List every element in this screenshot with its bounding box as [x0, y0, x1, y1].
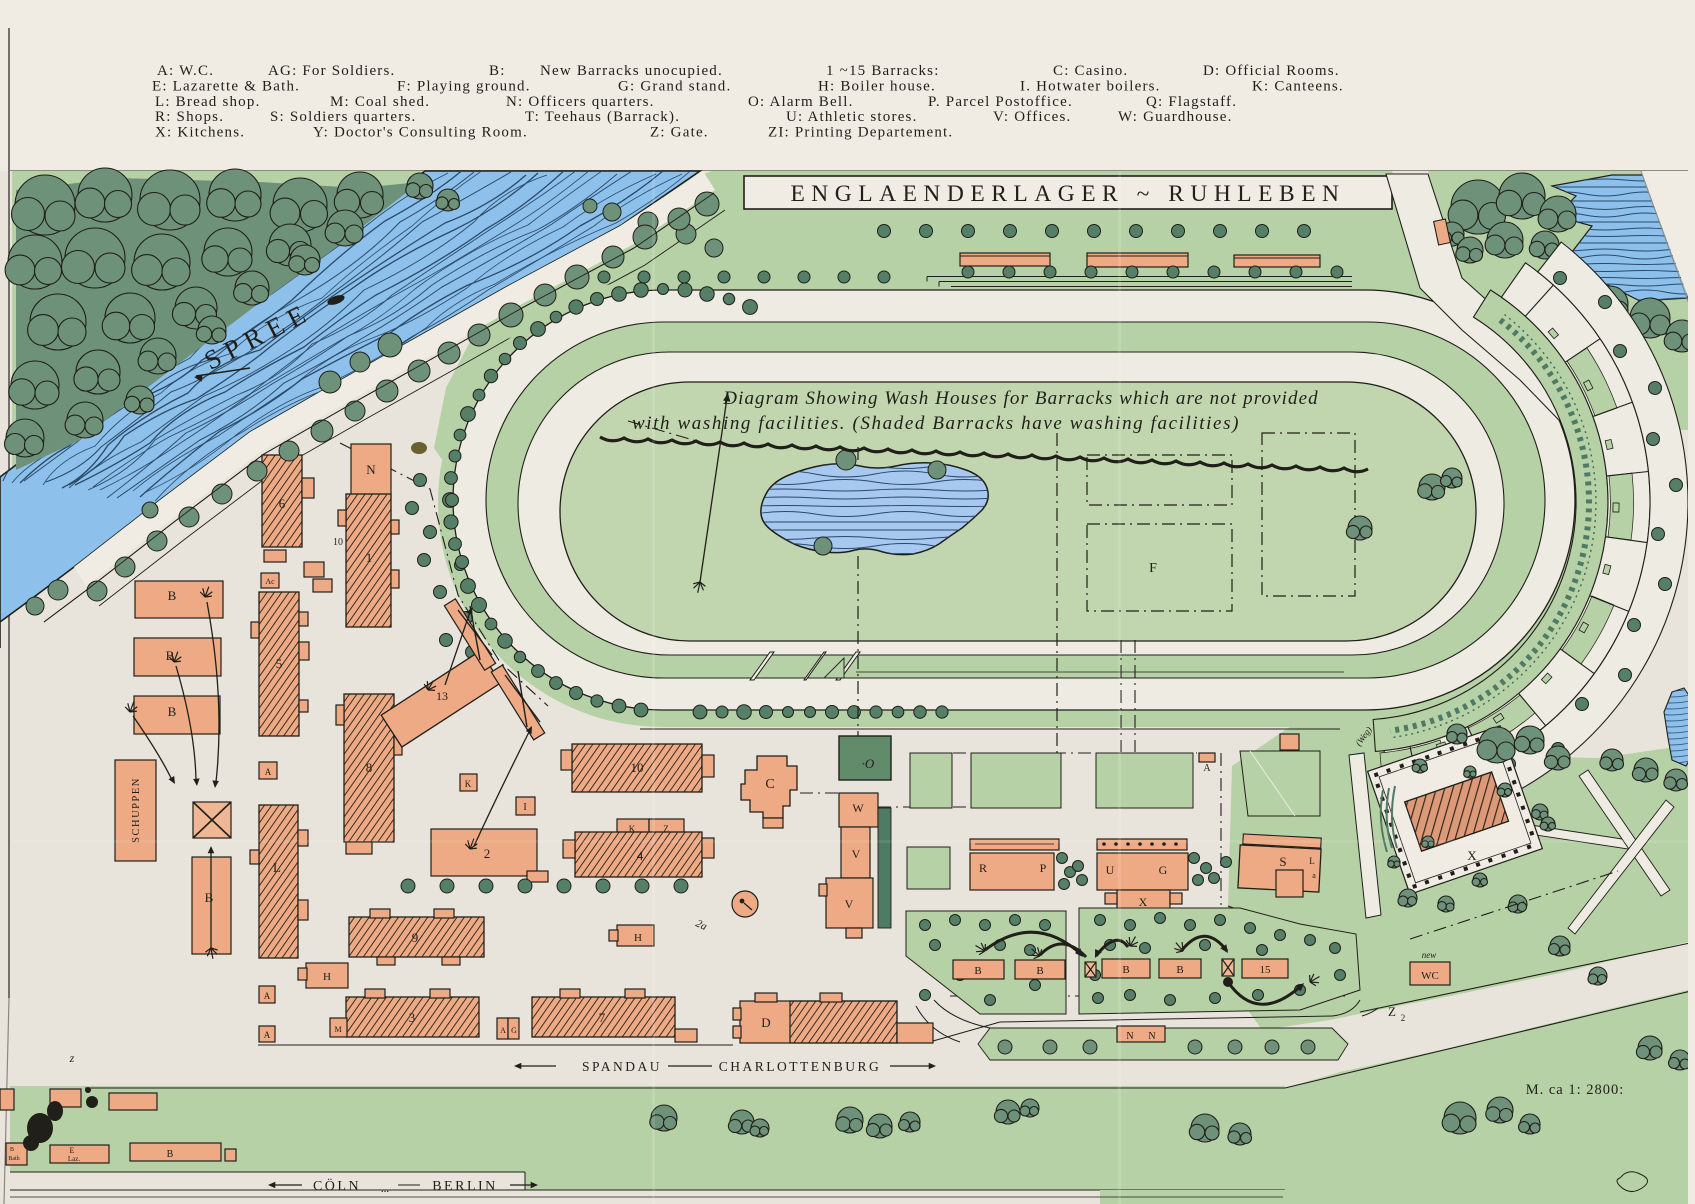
- svg-text:9: 9: [412, 930, 419, 945]
- svg-text:z: z: [69, 1051, 75, 1065]
- svg-text:·O: ·O: [862, 756, 875, 771]
- svg-text:A: A: [1203, 763, 1211, 774]
- svg-text:Q: Flagstaff.: Q: Flagstaff.: [1146, 94, 1237, 110]
- svg-text:S: Soldiers quarters.: S: Soldiers quarters.: [270, 109, 416, 125]
- svg-text:P. Parcel Postoffice.: P. Parcel Postoffice.: [928, 94, 1073, 110]
- svg-text:V: V: [852, 847, 861, 861]
- svg-text:N: Officers quarters.: N: Officers quarters.: [506, 94, 655, 110]
- svg-text:B: B: [1036, 965, 1043, 977]
- svg-text:N: N: [1148, 1031, 1155, 1042]
- svg-text:Y: Doctor's Consulting Room.: Y: Doctor's Consulting Room.: [313, 125, 528, 141]
- svg-text:new: new: [1422, 950, 1437, 960]
- svg-text:X: X: [1467, 848, 1477, 863]
- svg-text:1: 1: [366, 550, 373, 565]
- svg-text:...: ...: [381, 1183, 390, 1195]
- svg-text:V: Offices.: V: Offices.: [993, 109, 1071, 125]
- svg-text:C: C: [765, 777, 774, 792]
- svg-text:3: 3: [409, 1010, 416, 1025]
- svg-text:CHARLOTTENBURG: CHARLOTTENBURG: [719, 1059, 882, 1074]
- svg-text:U: U: [1106, 863, 1115, 877]
- svg-text:Ac: Ac: [265, 577, 275, 586]
- svg-text:L: L: [1309, 856, 1315, 866]
- svg-text:A: A: [265, 767, 272, 777]
- svg-text:W: W: [852, 801, 864, 815]
- svg-text:X: X: [1139, 895, 1148, 909]
- svg-text:Z: Gate.: Z: Gate.: [650, 125, 709, 141]
- svg-text:7: 7: [599, 1010, 606, 1025]
- svg-text:N: N: [366, 462, 376, 477]
- svg-text:V: V: [845, 897, 854, 911]
- svg-text:M: M: [334, 1025, 341, 1034]
- svg-text:H: Boiler house.: H: Boiler house.: [818, 79, 936, 95]
- svg-text:WC: WC: [1421, 970, 1439, 982]
- svg-text:Z: Z: [1388, 1004, 1396, 1019]
- svg-text:a: a: [1312, 871, 1316, 880]
- svg-text:I: I: [523, 802, 526, 813]
- svg-text:A: A: [500, 1026, 506, 1035]
- svg-text:W: Guardhouse.: W: Guardhouse.: [1118, 109, 1233, 125]
- svg-text:F: Playing ground.: F: Playing ground.: [397, 79, 531, 95]
- svg-text:O: Alarm Bell.: O: Alarm Bell.: [748, 94, 854, 110]
- svg-text:B: B: [168, 704, 177, 719]
- svg-text:B: B: [167, 1149, 174, 1160]
- svg-text:13: 13: [436, 689, 448, 703]
- svg-text:A: A: [264, 1030, 271, 1040]
- svg-text:8: 8: [366, 760, 373, 775]
- svg-text:H: H: [634, 932, 642, 944]
- svg-text:H: H: [323, 971, 331, 983]
- svg-text:5: 5: [276, 656, 283, 671]
- svg-text:10: 10: [631, 760, 644, 775]
- svg-text:B: B: [10, 1147, 14, 1153]
- svg-text:Laz.: Laz.: [68, 1155, 80, 1163]
- svg-text:D: D: [761, 1015, 770, 1030]
- svg-text:6: 6: [279, 496, 286, 511]
- svg-text:R: R: [979, 861, 987, 875]
- svg-text:B:: B:: [489, 63, 506, 79]
- svg-text:E: E: [70, 1146, 75, 1155]
- svg-text:M: Coal shed.: M: Coal shed.: [330, 94, 430, 110]
- svg-text:1 ~15 Barracks:: 1 ~15 Barracks:: [826, 63, 940, 79]
- svg-text:B: B: [1176, 964, 1183, 976]
- svg-text:AG: For Soldiers.: AG: For Soldiers.: [268, 63, 396, 79]
- svg-text:B: B: [974, 965, 981, 977]
- svg-text:2: 2: [1401, 1013, 1406, 1023]
- svg-text:P: P: [1040, 861, 1047, 875]
- svg-text:R: Shops.: R: Shops.: [155, 109, 224, 125]
- svg-text:G: G: [511, 1026, 517, 1035]
- svg-text:F: F: [1149, 561, 1157, 576]
- svg-text:2: 2: [484, 846, 491, 861]
- svg-text:ZI: Printing Departement.: ZI: Printing Departement.: [768, 125, 953, 141]
- svg-text:X: Kitchens.: X: Kitchens.: [155, 125, 245, 141]
- svg-text:G: G: [1159, 863, 1168, 877]
- svg-text:S: S: [1279, 854, 1286, 869]
- svg-text:D: Official Rooms.: D: Official Rooms.: [1203, 63, 1340, 79]
- svg-text:K: K: [465, 779, 472, 789]
- svg-text:M. ca 1: 2800:: M. ca 1: 2800:: [1526, 1082, 1625, 1098]
- svg-text:B: B: [1122, 964, 1129, 976]
- svg-text:K: Canteens.: K: Canteens.: [1252, 79, 1344, 95]
- svg-text:T: Teehaus (Barrack).: T: Teehaus (Barrack).: [525, 109, 680, 125]
- svg-text:B: B: [168, 588, 177, 603]
- svg-text:BERLIN: BERLIN: [432, 1179, 498, 1194]
- svg-text:Diagram Showing Wash Houses: Diagram Showing Wash Houses for Barracks…: [722, 388, 1318, 409]
- svg-text:A: W.C.: A: W.C.: [157, 63, 214, 79]
- svg-text:SPANDAU: SPANDAU: [582, 1059, 662, 1074]
- svg-text:Bath: Bath: [8, 1156, 19, 1162]
- svg-text:B: B: [205, 890, 214, 905]
- svg-text:10: 10: [333, 537, 343, 548]
- svg-text:L: L: [273, 860, 281, 875]
- svg-text:C: Casino.: C: Casino.: [1053, 63, 1128, 79]
- svg-text:L: Bread shop.: L: Bread shop.: [155, 94, 261, 110]
- svg-text:SCHUPPEN: SCHUPPEN: [131, 777, 142, 843]
- svg-text:N: N: [1126, 1031, 1133, 1042]
- svg-text:ENGLAENDERLAGER ~ RUHLEBEN: ENGLAENDERLAGER ~ RUHLEBEN: [790, 181, 1345, 207]
- svg-text:U: Athletic stores.: U: Athletic stores.: [786, 109, 918, 125]
- svg-text:A: A: [264, 991, 271, 1001]
- svg-text:E: Lazarette & Bath.: E: Lazarette & Bath.: [152, 79, 300, 95]
- svg-text:CÖLN: CÖLN: [313, 1177, 361, 1194]
- svg-text:I. Hotwater boilers.: I. Hotwater boilers.: [1020, 79, 1161, 95]
- svg-text:4: 4: [637, 848, 644, 863]
- svg-text:New Barracks unocupied.: New Barracks unocupied.: [540, 63, 723, 79]
- svg-text:15: 15: [1260, 964, 1272, 976]
- svg-text:G: Grand stand.: G: Grand stand.: [618, 79, 731, 95]
